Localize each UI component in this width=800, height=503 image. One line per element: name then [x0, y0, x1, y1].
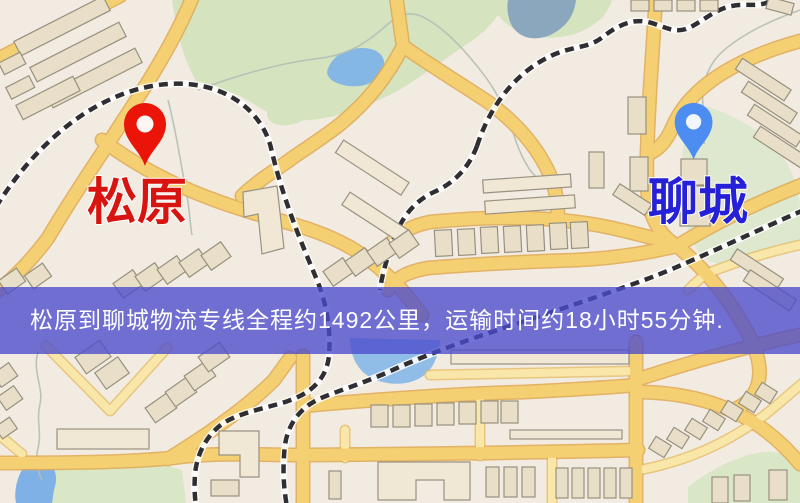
destination-label: 聊城 [648, 172, 748, 231]
map-screenshot: 松原 聊城 松原到聊城物流专线全程约1492公里，运输时间约18小时55分钟. [0, 0, 800, 503]
origin-label: 松原 [87, 172, 187, 231]
map-canvas[interactable]: 松原 聊城 [0, 0, 800, 503]
route-info-banner: 松原到聊城物流专线全程约1492公里，运输时间约18小时55分钟. [0, 287, 800, 354]
route-info-text: 松原到聊城物流专线全程约1492公里，运输时间约18小时55分钟. [30, 307, 724, 333]
